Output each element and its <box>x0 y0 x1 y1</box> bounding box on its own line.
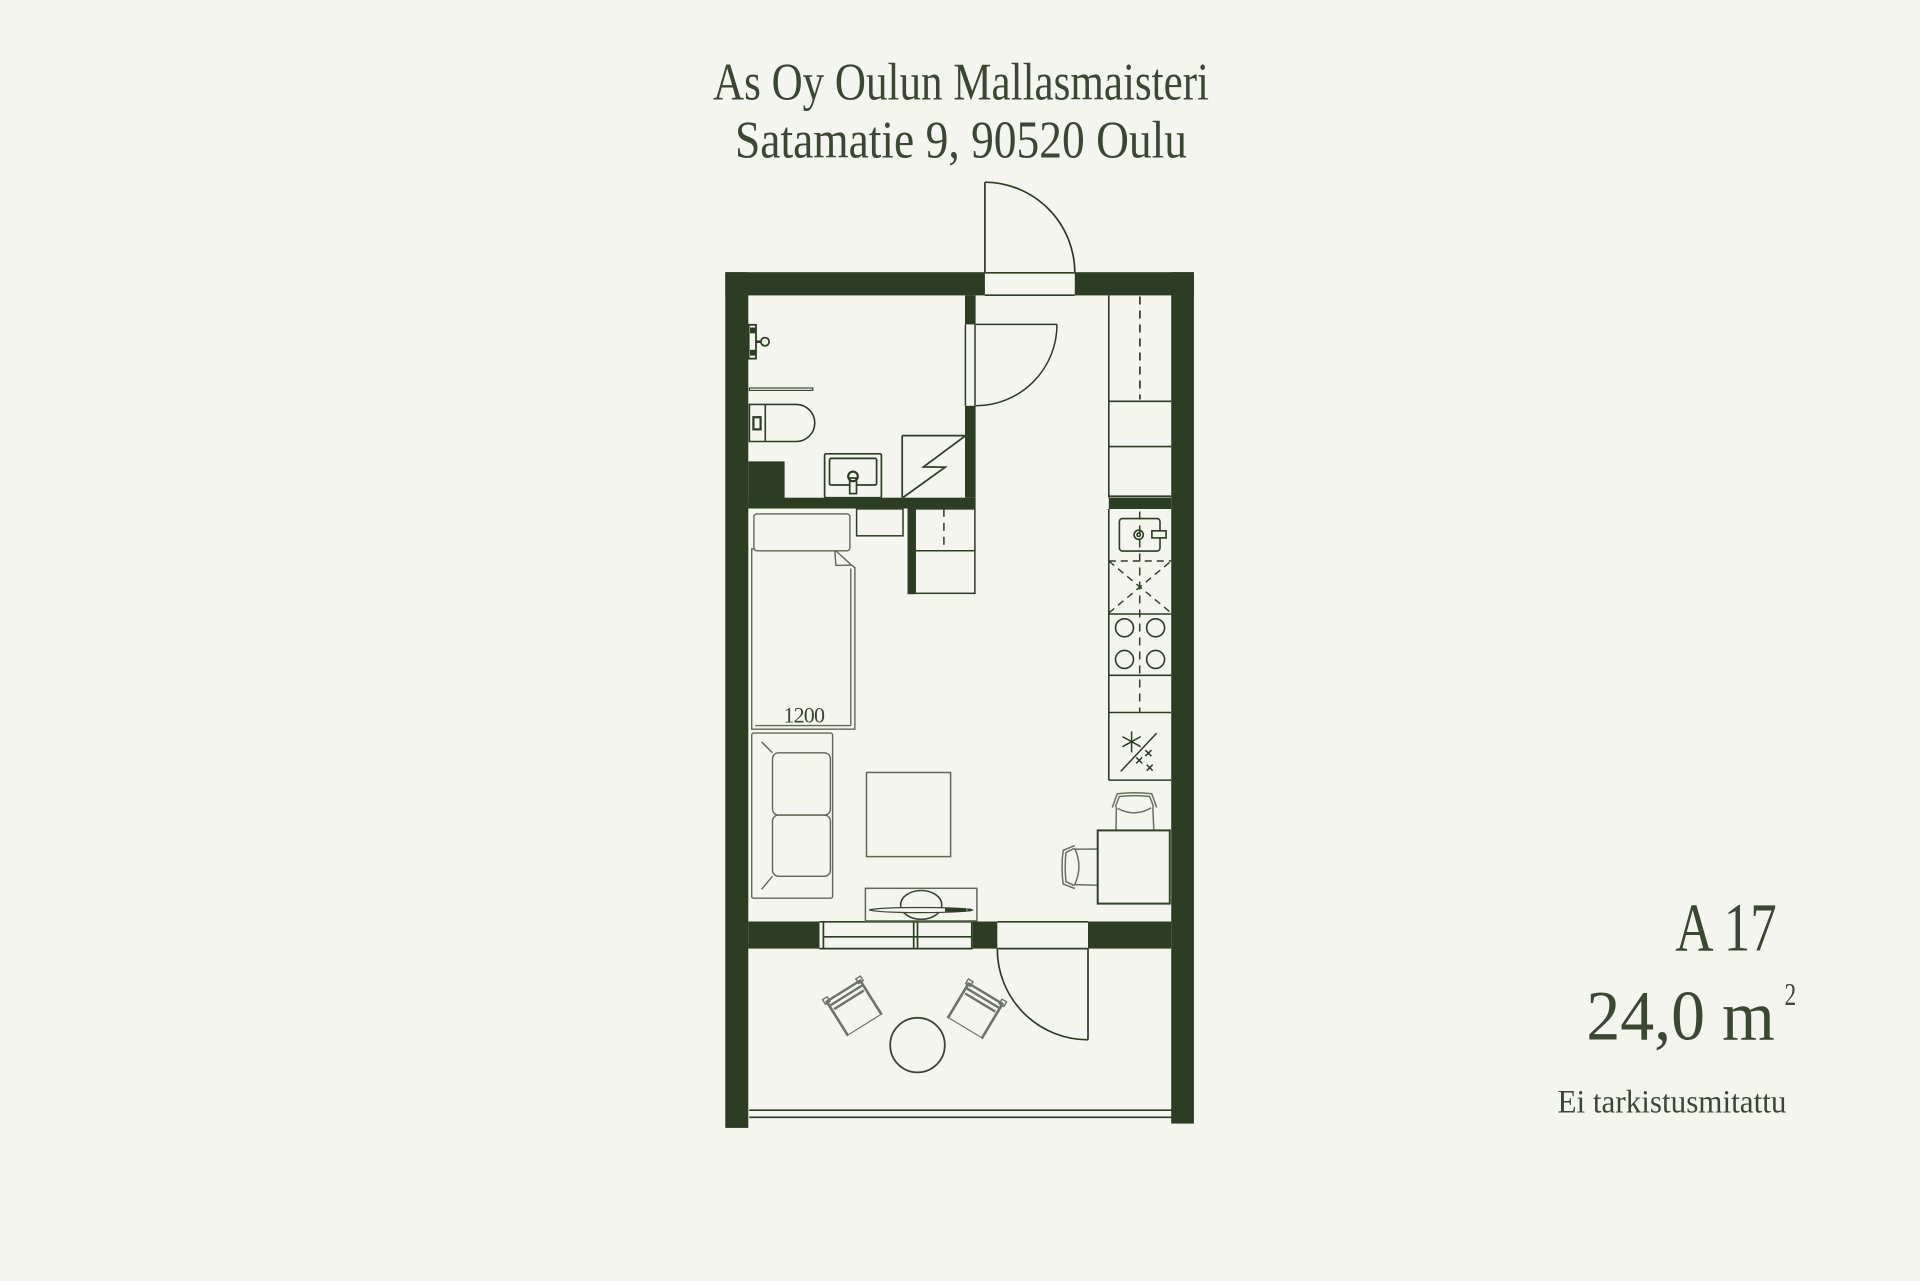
svg-text:1200: 1200 <box>783 703 825 728</box>
svg-text:24,0 m: 24,0 m <box>1586 977 1774 1055</box>
svg-text:As Oy Oulun Mallasmaisteri: As Oy Oulun Mallasmaisteri <box>713 53 1209 111</box>
svg-text:Satamatie 9, 90520 Oulu: Satamatie 9, 90520 Oulu <box>735 112 1187 170</box>
svg-text:Ei tarkistusmitattu: Ei tarkistusmitattu <box>1558 1085 1787 1121</box>
svg-text:2: 2 <box>1785 976 1797 1012</box>
svg-text:A 17: A 17 <box>1675 890 1777 966</box>
